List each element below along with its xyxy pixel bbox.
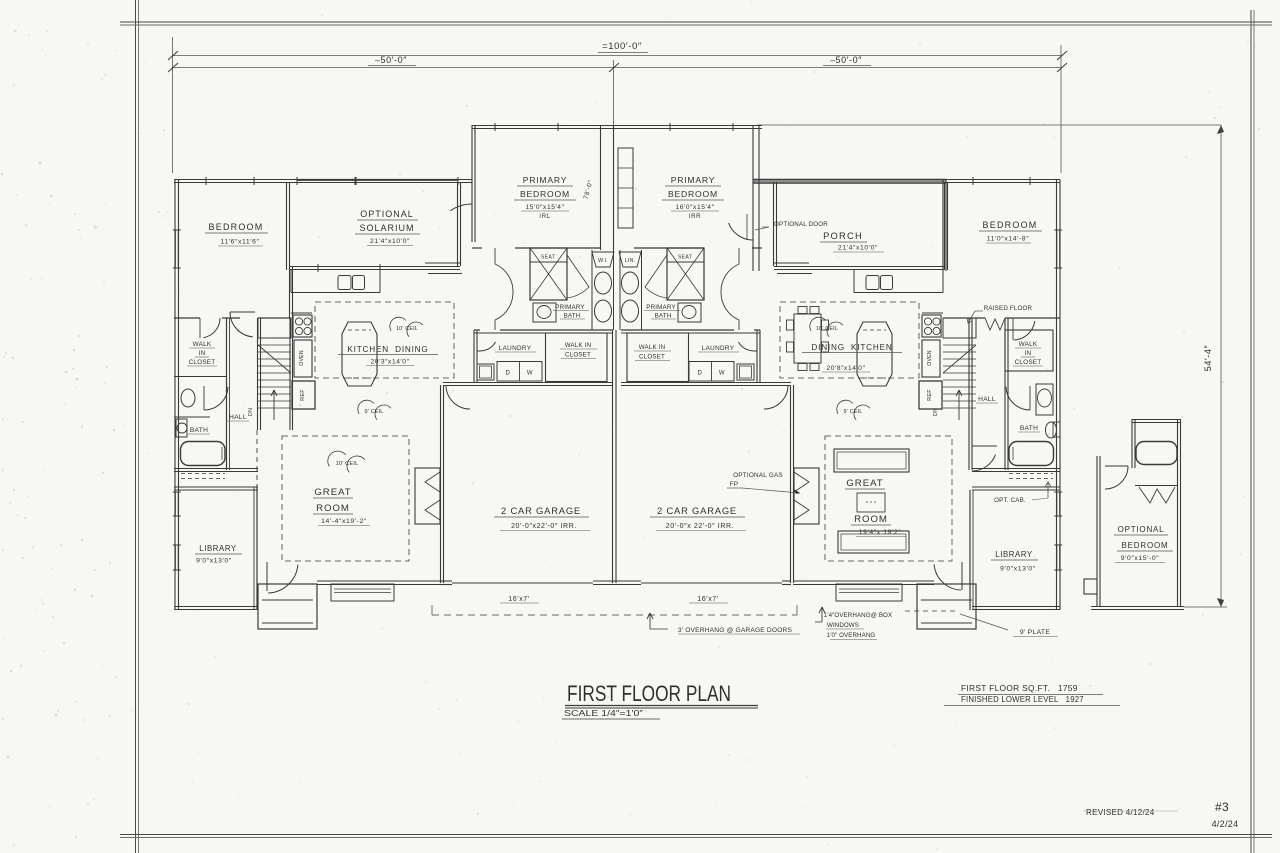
svg-text:W: W bbox=[527, 371, 533, 377]
svg-text:CLOSET: CLOSET bbox=[565, 352, 591, 359]
svg-text:IRL: IRL bbox=[539, 213, 550, 220]
svg-text:20′-0″x22′-0″ IRR.: 20′-0″x22′-0″ IRR. bbox=[511, 523, 577, 530]
svg-text:D: D bbox=[506, 371, 511, 377]
svg-text:1′4″OVERHANG@ BOX: 1′4″OVERHANG@ BOX bbox=[824, 612, 892, 619]
svg-text:LIBRARY: LIBRARY bbox=[995, 550, 1033, 559]
svg-text:9′0″x13′0″: 9′0″x13′0″ bbox=[196, 558, 232, 565]
svg-text:OPT. CAB.: OPT. CAB. bbox=[994, 497, 1026, 504]
svg-text:FIRST FLOOR SQ.FT. 1759: FIRST FLOOR SQ.FT. 1759 bbox=[961, 683, 1078, 693]
svg-text:LIN.: LIN. bbox=[625, 258, 635, 264]
svg-text:PRIMARY: PRIMARY bbox=[646, 304, 675, 311]
svg-text:DN: DN bbox=[933, 408, 939, 416]
svg-text:9′ PLATE: 9′ PLATE bbox=[1020, 629, 1051, 636]
svg-text:2 CAR GARAGE: 2 CAR GARAGE bbox=[501, 505, 581, 516]
svg-text:3′ OVERHANG @ GARAGE DOORS: 3′ OVERHANG @ GARAGE DOORS bbox=[678, 627, 793, 634]
svg-text:IRR: IRR bbox=[689, 213, 701, 220]
svg-text:#3: #3 bbox=[1215, 800, 1229, 814]
svg-text:9′0″x15′-0″: 9′0″x15′-0″ bbox=[1121, 555, 1160, 562]
svg-text:11′6″x11′6″: 11′6″x11′6″ bbox=[220, 239, 259, 246]
svg-text:HALL: HALL bbox=[229, 414, 247, 421]
svg-text:ROOM: ROOM bbox=[854, 514, 888, 525]
svg-text:10′ CEIL: 10′ CEIL bbox=[816, 326, 838, 332]
svg-text:REF: REF bbox=[927, 389, 933, 401]
svg-text:10′ CEIL: 10′ CEIL bbox=[336, 461, 359, 467]
svg-text:D: D bbox=[698, 371, 703, 377]
svg-text:54′-4″: 54′-4″ bbox=[1203, 345, 1213, 372]
svg-text:PRIMARY: PRIMARY bbox=[555, 304, 584, 311]
svg-text:LIBRARY: LIBRARY bbox=[199, 544, 237, 553]
svg-text:FP: FP bbox=[730, 481, 739, 488]
svg-text:IN: IN bbox=[199, 350, 206, 357]
svg-text:9′ CEIL: 9′ CEIL bbox=[844, 409, 863, 415]
svg-text:14′-4″x19′-2″: 14′-4″x19′-2″ bbox=[321, 518, 367, 525]
svg-text:CLOSET: CLOSET bbox=[189, 359, 216, 366]
svg-text:W: W bbox=[719, 371, 725, 377]
svg-text:BATH: BATH bbox=[655, 313, 672, 320]
svg-text:BEDROOM: BEDROOM bbox=[983, 220, 1038, 230]
svg-text:OPTIONAL: OPTIONAL bbox=[360, 209, 414, 219]
svg-text:OPTIONAL DOOR: OPTIONAL DOOR bbox=[774, 221, 828, 228]
svg-text:16′x7′: 16′x7′ bbox=[508, 596, 529, 603]
svg-text:OVEN: OVEN bbox=[927, 350, 933, 366]
svg-text:IN: IN bbox=[1025, 350, 1032, 357]
svg-text:WALK IN: WALK IN bbox=[639, 344, 666, 351]
svg-text:–50′-0″: –50′-0″ bbox=[375, 55, 407, 65]
svg-text:GREAT: GREAT bbox=[314, 487, 351, 498]
svg-text:FIRST FLOOR PLAN: FIRST FLOOR PLAN bbox=[567, 681, 731, 706]
svg-text:KITCHEN DINING: KITCHEN DINING bbox=[347, 345, 428, 354]
svg-text:HALL: HALL bbox=[978, 396, 996, 403]
svg-text:BEDROOM: BEDROOM bbox=[520, 189, 570, 199]
svg-text:9′ CEIL: 9′ CEIL bbox=[365, 409, 384, 415]
svg-text:19′4″x 19′2″: 19′4″x 19′2″ bbox=[859, 529, 902, 536]
svg-text:OPTIONAL GAS: OPTIONAL GAS bbox=[733, 472, 783, 479]
svg-text:21′4″x10′0″: 21′4″x10′0″ bbox=[838, 245, 878, 252]
svg-text:DINING KITCHEN: DINING KITCHEN bbox=[811, 343, 892, 352]
svg-text:21′4″x10′0″: 21′4″x10′0″ bbox=[370, 238, 410, 245]
svg-text:CLOSET: CLOSET bbox=[1015, 359, 1042, 366]
svg-text:W.I.: W.I. bbox=[598, 258, 608, 264]
svg-text:11′0″x14′-8″: 11′0″x14′-8″ bbox=[987, 236, 1029, 243]
svg-text:LAUNDRY: LAUNDRY bbox=[499, 345, 532, 352]
svg-text:OVEN: OVEN bbox=[299, 350, 305, 366]
svg-text:REF: REF bbox=[300, 389, 306, 401]
svg-text:9′0″x13′0″: 9′0″x13′0″ bbox=[1000, 566, 1036, 573]
svg-text:BEDROOM: BEDROOM bbox=[209, 222, 264, 232]
svg-text:OPTIONAL: OPTIONAL bbox=[1118, 525, 1165, 534]
svg-text:REVISED 4/12/24: REVISED 4/12/24 bbox=[1086, 808, 1155, 817]
svg-text:SEAT: SEAT bbox=[678, 255, 693, 261]
svg-text:20′8″x14′0″: 20′8″x14′0″ bbox=[826, 365, 865, 372]
svg-text:SEAT: SEAT bbox=[541, 255, 556, 261]
svg-text:–50′-0″: –50′-0″ bbox=[830, 55, 862, 65]
svg-text:PRIMARY: PRIMARY bbox=[523, 175, 568, 185]
svg-text:WINDOWS: WINDOWS bbox=[827, 622, 859, 629]
svg-text:10′ CEIL: 10′ CEIL bbox=[396, 326, 418, 332]
svg-text:PRIMARY: PRIMARY bbox=[671, 175, 716, 185]
svg-text:16′x7′: 16′x7′ bbox=[697, 596, 718, 603]
svg-text:CLOSET: CLOSET bbox=[639, 354, 665, 361]
svg-text:PORCH: PORCH bbox=[823, 230, 863, 241]
svg-text:15′0″x15′4″: 15′0″x15′4″ bbox=[525, 204, 564, 211]
svg-text:1′0″ OVERHANG: 1′0″ OVERHANG bbox=[827, 632, 876, 639]
svg-text:SOLARIUM: SOLARIUM bbox=[359, 223, 414, 233]
svg-text:20′-0″x 22′-0″ IRR.: 20′-0″x 22′-0″ IRR. bbox=[666, 523, 734, 530]
svg-text:BATH: BATH bbox=[190, 427, 208, 434]
svg-text:WALK IN: WALK IN bbox=[565, 342, 592, 349]
svg-text:4/2/24: 4/2/24 bbox=[1212, 819, 1239, 829]
svg-text:BATH: BATH bbox=[564, 313, 581, 320]
svg-text:RAISED FLOOR: RAISED FLOOR bbox=[984, 305, 1033, 312]
svg-text:LAUNDRY: LAUNDRY bbox=[702, 345, 735, 352]
svg-text:BEDROOM: BEDROOM bbox=[668, 189, 718, 199]
svg-text:16′0″x15′4″: 16′0″x15′4″ bbox=[675, 204, 714, 211]
svg-text:2 CAR GARAGE: 2 CAR GARAGE bbox=[657, 505, 737, 516]
svg-text:BEDROOM: BEDROOM bbox=[1122, 541, 1169, 550]
svg-text:DN: DN bbox=[248, 408, 254, 416]
svg-text:ROOM: ROOM bbox=[316, 503, 350, 514]
svg-text:GREAT: GREAT bbox=[846, 478, 883, 489]
svg-text:20′3″x14′0″: 20′3″x14′0″ bbox=[370, 359, 409, 366]
svg-text:FINISHED LOWER LEVEL 1927: FINISHED LOWER LEVEL 1927 bbox=[961, 695, 1084, 704]
svg-text:SCALE 1/4″=1′0″: SCALE 1/4″=1′0″ bbox=[564, 708, 643, 718]
svg-text:WALK: WALK bbox=[1019, 341, 1038, 348]
svg-text:WALK: WALK bbox=[193, 341, 212, 348]
svg-text:BATH: BATH bbox=[1020, 425, 1038, 432]
svg-text:=100′-0″: =100′-0″ bbox=[602, 41, 642, 52]
